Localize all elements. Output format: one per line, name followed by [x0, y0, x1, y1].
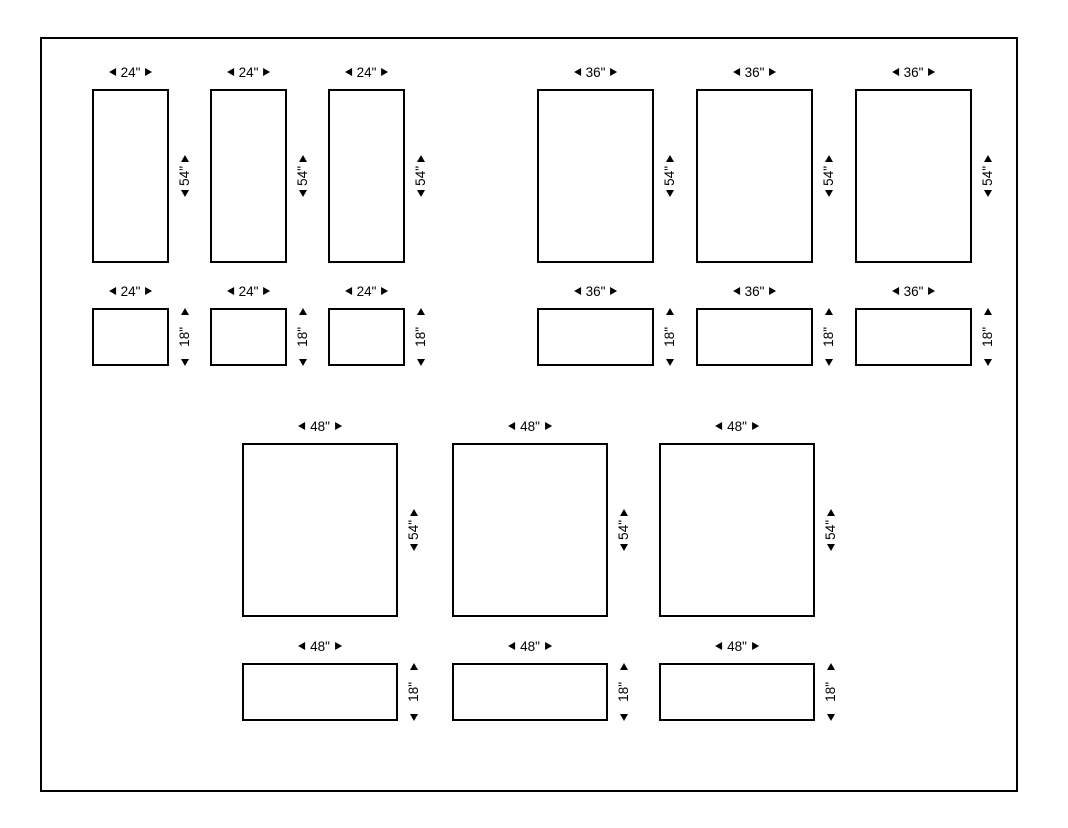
width-label: 36"	[745, 285, 765, 299]
panel-outline	[92, 308, 169, 366]
arrow-left-icon	[227, 68, 234, 76]
arrow-up-icon	[666, 308, 674, 315]
arrow-left-icon	[345, 287, 352, 295]
width-dimension: 24"	[109, 285, 153, 299]
panel-36x18: 36" 18"	[537, 308, 654, 366]
width-dimension: 48"	[508, 420, 552, 434]
height-label: 54"	[824, 520, 838, 540]
arrow-down-icon	[417, 359, 425, 366]
height-dimension: 18"	[178, 308, 192, 366]
arrow-right-icon	[769, 287, 776, 295]
width-dimension: 48"	[715, 420, 759, 434]
arrow-right-icon	[928, 287, 935, 295]
height-label: 18"	[822, 327, 836, 347]
width-label: 24"	[121, 285, 141, 299]
arrow-up-icon	[417, 308, 425, 315]
arrow-down-icon	[984, 190, 992, 197]
width-dimension: 36"	[892, 285, 936, 299]
arrow-up-icon	[666, 155, 674, 162]
arrow-down-icon	[666, 359, 674, 366]
width-dimension: 36"	[574, 66, 618, 80]
arrow-left-icon	[508, 642, 515, 650]
width-dimension: 48"	[508, 640, 552, 654]
arrow-up-icon	[620, 663, 628, 670]
panel-24x18: 24" 18"	[210, 308, 287, 366]
arrow-down-icon	[299, 359, 307, 366]
arrow-right-icon	[145, 287, 152, 295]
height-label: 18"	[617, 682, 631, 702]
width-dimension: 24"	[345, 285, 389, 299]
panel-outline	[242, 663, 398, 721]
panel-outline	[328, 89, 405, 263]
width-label: 24"	[357, 285, 377, 299]
width-dimension: 24"	[227, 66, 271, 80]
panel-48x54: 48" 54"	[659, 443, 815, 617]
panel-outline	[210, 89, 287, 263]
width-label: 48"	[727, 420, 747, 434]
height-label: 54"	[296, 166, 310, 186]
panel-24x54: 24" 54"	[92, 89, 169, 263]
width-dimension: 24"	[227, 285, 271, 299]
arrow-up-icon	[825, 155, 833, 162]
arrow-up-icon	[620, 509, 628, 516]
arrow-down-icon	[181, 190, 189, 197]
height-dimension: 54"	[178, 89, 192, 263]
arrow-down-icon	[620, 714, 628, 721]
width-label: 48"	[520, 420, 540, 434]
height-label: 18"	[407, 682, 421, 702]
height-label: 54"	[663, 166, 677, 186]
arrow-down-icon	[299, 190, 307, 197]
height-dimension: 54"	[617, 443, 631, 617]
panel-48x54: 48" 54"	[452, 443, 608, 617]
panel-36x54: 36" 54"	[696, 89, 813, 263]
panel-24x54: 24" 54"	[210, 89, 287, 263]
panel-outline	[92, 89, 169, 263]
width-label: 48"	[310, 640, 330, 654]
arrow-right-icon	[145, 68, 152, 76]
height-label: 54"	[414, 166, 428, 186]
height-label: 54"	[822, 166, 836, 186]
height-dimension: 18"	[296, 308, 310, 366]
arrow-right-icon	[335, 422, 342, 430]
width-dimension: 48"	[298, 640, 342, 654]
height-dimension: 18"	[824, 663, 838, 721]
panel-48x18: 48" 18"	[242, 663, 398, 721]
width-dimension: 36"	[733, 66, 777, 80]
height-label: 54"	[981, 166, 995, 186]
arrow-right-icon	[335, 642, 342, 650]
arrow-right-icon	[381, 287, 388, 295]
width-dimension: 36"	[892, 66, 936, 80]
arrow-left-icon	[227, 287, 234, 295]
arrow-down-icon	[410, 714, 418, 721]
panel-36x18: 36" 18"	[696, 308, 813, 366]
arrow-down-icon	[827, 714, 835, 721]
panel-outline	[328, 308, 405, 366]
width-label: 48"	[310, 420, 330, 434]
panel-outline	[452, 663, 608, 721]
panel-outline	[537, 308, 654, 366]
arrow-down-icon	[417, 190, 425, 197]
width-label: 48"	[727, 640, 747, 654]
height-dimension: 54"	[981, 89, 995, 263]
width-label: 36"	[904, 285, 924, 299]
panel-48x18: 48" 18"	[659, 663, 815, 721]
arrow-up-icon	[417, 155, 425, 162]
height-dimension: 54"	[296, 89, 310, 263]
arrow-left-icon	[298, 422, 305, 430]
height-dimension: 54"	[822, 89, 836, 263]
panel-outline	[659, 663, 815, 721]
arrow-down-icon	[410, 544, 418, 551]
height-label: 18"	[178, 327, 192, 347]
arrow-right-icon	[928, 68, 935, 76]
height-label: 18"	[296, 327, 310, 347]
arrow-left-icon	[715, 642, 722, 650]
height-label: 18"	[981, 327, 995, 347]
panel-outline	[855, 308, 972, 366]
panel-outline	[452, 443, 608, 617]
panel-24x18: 24" 18"	[328, 308, 405, 366]
width-label: 36"	[745, 66, 765, 80]
width-label: 24"	[239, 66, 259, 80]
panel-24x18: 24" 18"	[92, 308, 169, 366]
arrow-up-icon	[181, 308, 189, 315]
height-dimension: 18"	[822, 308, 836, 366]
arrow-up-icon	[181, 155, 189, 162]
panel-48x54: 48" 54"	[242, 443, 398, 617]
arrow-left-icon	[508, 422, 515, 430]
width-dimension: 24"	[345, 66, 389, 80]
height-dimension: 54"	[824, 443, 838, 617]
width-dimension: 36"	[733, 285, 777, 299]
height-label: 18"	[824, 682, 838, 702]
height-label: 18"	[663, 327, 677, 347]
arrow-up-icon	[984, 308, 992, 315]
arrow-right-icon	[752, 422, 759, 430]
arrow-left-icon	[715, 422, 722, 430]
arrow-right-icon	[610, 287, 617, 295]
arrow-down-icon	[984, 359, 992, 366]
arrow-right-icon	[381, 68, 388, 76]
height-dimension: 54"	[414, 89, 428, 263]
height-dimension: 18"	[663, 308, 677, 366]
width-label: 48"	[520, 640, 540, 654]
height-label: 18"	[414, 327, 428, 347]
arrow-left-icon	[733, 287, 740, 295]
width-dimension: 24"	[109, 66, 153, 80]
panel-36x18: 36" 18"	[855, 308, 972, 366]
height-dimension: 18"	[981, 308, 995, 366]
arrow-up-icon	[299, 155, 307, 162]
arrow-right-icon	[263, 287, 270, 295]
arrow-left-icon	[298, 642, 305, 650]
height-label: 54"	[407, 520, 421, 540]
arrow-up-icon	[299, 308, 307, 315]
arrow-down-icon	[666, 190, 674, 197]
panel-outline	[696, 89, 813, 263]
panel-24x54: 24" 54"	[328, 89, 405, 263]
arrow-left-icon	[109, 287, 116, 295]
width-label: 36"	[904, 66, 924, 80]
height-dimension: 18"	[617, 663, 631, 721]
width-dimension: 48"	[298, 420, 342, 434]
arrow-right-icon	[545, 642, 552, 650]
arrow-up-icon	[410, 509, 418, 516]
arrow-right-icon	[769, 68, 776, 76]
panel-36x54: 36" 54"	[855, 89, 972, 263]
panel-36x54: 36" 54"	[537, 89, 654, 263]
arrow-right-icon	[752, 642, 759, 650]
arrow-down-icon	[825, 190, 833, 197]
arrow-right-icon	[263, 68, 270, 76]
arrow-down-icon	[827, 544, 835, 551]
arrow-left-icon	[574, 68, 581, 76]
arrow-left-icon	[574, 287, 581, 295]
width-dimension: 48"	[715, 640, 759, 654]
panel-48x18: 48" 18"	[452, 663, 608, 721]
arrow-right-icon	[610, 68, 617, 76]
panel-outline	[242, 443, 398, 617]
arrow-right-icon	[545, 422, 552, 430]
arrow-down-icon	[620, 544, 628, 551]
panel-size-diagram: 24" 54" 24" 54" 24" 5	[0, 0, 1068, 828]
width-label: 36"	[586, 285, 606, 299]
height-label: 54"	[617, 520, 631, 540]
height-dimension: 18"	[407, 663, 421, 721]
arrow-left-icon	[733, 68, 740, 76]
height-label: 54"	[178, 166, 192, 186]
width-label: 24"	[121, 66, 141, 80]
arrow-up-icon	[984, 155, 992, 162]
arrow-left-icon	[892, 68, 899, 76]
height-dimension: 54"	[663, 89, 677, 263]
height-dimension: 54"	[407, 443, 421, 617]
width-dimension: 36"	[574, 285, 618, 299]
arrow-down-icon	[825, 359, 833, 366]
panel-outline	[210, 308, 287, 366]
width-label: 24"	[239, 285, 259, 299]
width-label: 24"	[357, 66, 377, 80]
width-label: 36"	[586, 66, 606, 80]
arrow-up-icon	[827, 663, 835, 670]
panel-outline	[855, 89, 972, 263]
arrow-up-icon	[410, 663, 418, 670]
panel-outline	[696, 308, 813, 366]
arrow-left-icon	[892, 287, 899, 295]
arrow-up-icon	[825, 308, 833, 315]
arrow-left-icon	[109, 68, 116, 76]
arrow-up-icon	[827, 509, 835, 516]
panel-outline	[659, 443, 815, 617]
height-dimension: 18"	[414, 308, 428, 366]
arrow-left-icon	[345, 68, 352, 76]
arrow-down-icon	[181, 359, 189, 366]
panel-outline	[537, 89, 654, 263]
